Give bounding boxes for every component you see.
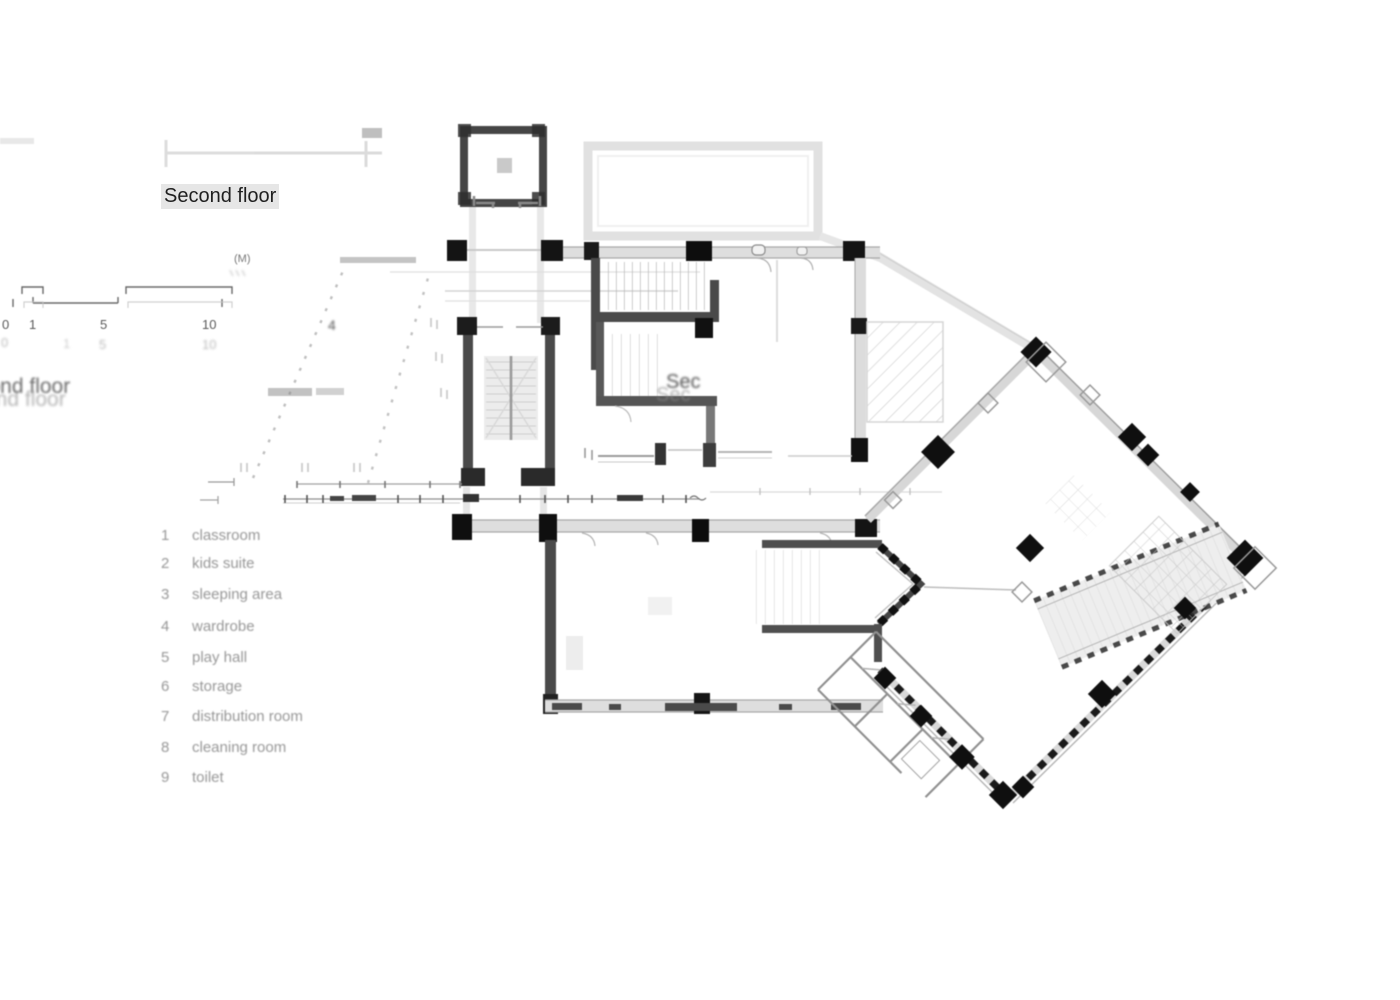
legend-item: 8 cleaning room [161,738,286,758]
scale-tick-1: 1 [29,317,36,332]
door-symbol [797,247,807,255]
lower-left-wall [545,540,556,702]
legend-item: 3 sleeping area [161,585,282,605]
upper-block [447,240,943,486]
ghost-label-sec-2: Sec [656,384,690,406]
legend-item: 1 classroom [161,526,260,546]
svg-text:1: 1 [63,336,70,351]
legend-label: play hall [192,648,247,668]
dimension-strings [200,478,942,504]
legend-number: 8 [161,738,192,758]
tower-shaft-mark [497,158,512,173]
ghost-title-lower: ond floor [0,388,66,412]
legend-number: 7 [161,707,192,727]
legend-label: storage [192,677,242,697]
ghost-bracket-top-left [0,128,382,167]
legend-number: 4 [161,617,192,637]
svg-text:0: 0 [1,335,8,350]
svg-text:5: 5 [99,337,106,352]
scale-tick-10: 10 [202,317,216,332]
scale-ghost-ticks: 0 1 5 10 [1,270,245,352]
scale-tick-0: 0 [2,317,9,332]
legend-label: cleaning room [192,738,286,758]
legend-label: toilet [192,768,224,788]
legend-item: 2 kids suite [161,554,255,574]
upper-bottom-walls [598,443,852,467]
scale-unit-label: (M) [234,253,251,265]
door-symbol [752,245,765,255]
stair-core [457,317,560,486]
svg-text:10: 10 [202,337,216,352]
legend-number: 1 [161,526,192,546]
stair-tower [458,124,545,208]
legend-label: wardrobe [192,617,255,637]
legend-number: 5 [161,648,192,668]
legend-item: 4 wardrobe [161,617,255,637]
floor-plan-drawing: 0 1 5 10 (M) 0 1 5 10 [0,0,1400,1000]
scale-bar: 0 1 5 10 (M) 0 1 5 10 [1,253,251,352]
legend-item: 5 play hall [161,648,247,668]
chevron-stair [750,546,1016,662]
legend-item: 9 toilet [161,768,224,788]
legend-label: classroom [192,526,260,546]
legend-item: 6 storage [161,677,242,697]
legend-label: kids suite [192,554,255,574]
hatched-connector [867,322,943,422]
legend-number: 9 [161,768,192,788]
u-stair [585,258,719,462]
legend-item: 7 distribution room [161,707,303,727]
scale-bar-brackets [13,287,232,307]
legend-number: 3 [161,585,192,605]
legend-label: sleeping area [192,585,282,605]
lower-wing [452,514,1016,714]
stall-block [818,632,983,797]
floor-plan-page: 0 1 5 10 (M) 0 1 5 10 [0,0,1400,1000]
legend-number: 2 [161,554,192,574]
page-title: Second floor [161,184,279,209]
roof-outline [588,146,818,236]
ghost-ramp-dashes [253,264,428,483]
lower-top-wall [455,520,880,532]
legend-number: 6 [161,677,192,697]
legend-label: distribution room [192,707,303,727]
upper-right-wall [855,258,866,460]
ghost-room-number: 4 [328,317,336,333]
scale-tick-5: 5 [100,317,107,332]
